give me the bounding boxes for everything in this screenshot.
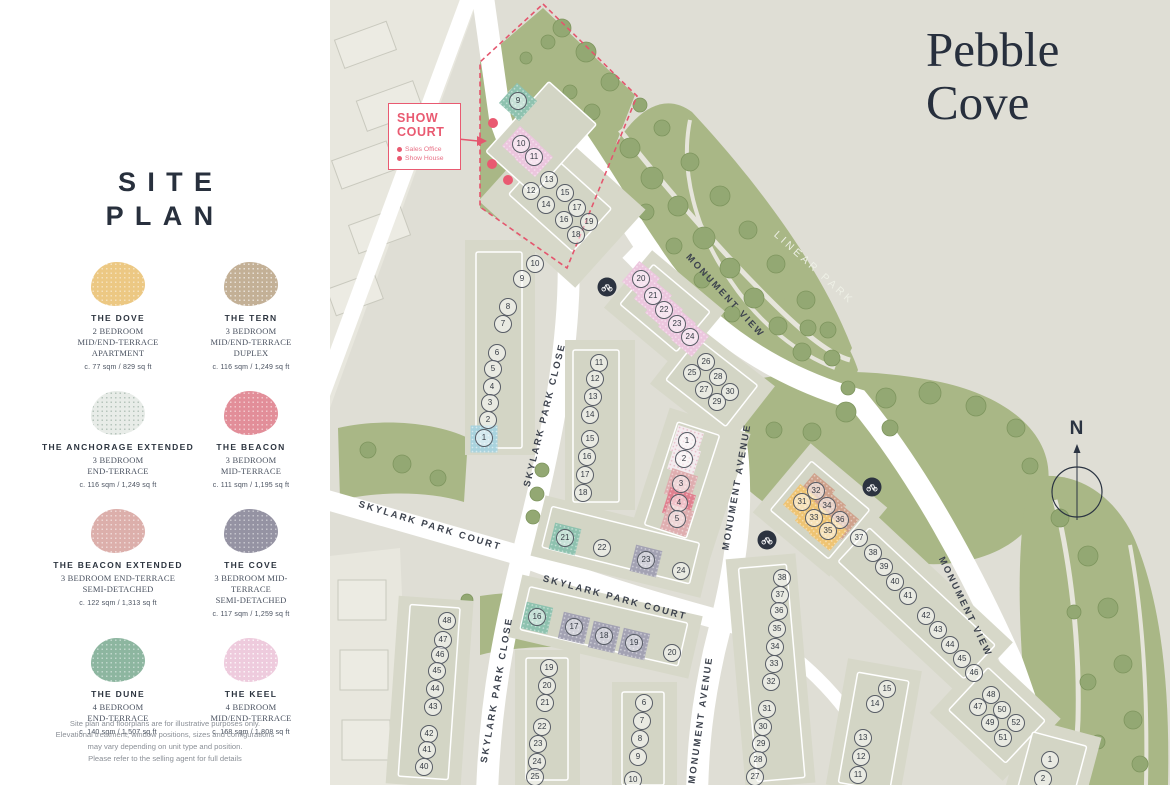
plot-marker[interactable]: 43 <box>424 698 442 716</box>
legend: THE DOVE2 BEDROOMMID/END-TERRACEAPARTMEN… <box>42 262 294 736</box>
plot-marker[interactable]: 43 <box>929 621 947 639</box>
plot-marker[interactable]: 5 <box>668 510 686 528</box>
plot-marker[interactable]: 2 <box>1034 770 1052 785</box>
plot-marker[interactable]: 48 <box>438 612 456 630</box>
legend-name: THE DUNE <box>42 689 194 699</box>
legend-swatch <box>224 262 278 306</box>
legend-name: THE BEACON EXTENDED <box>42 560 194 570</box>
plot-marker[interactable]: 35 <box>819 522 837 540</box>
plot-marker[interactable]: 17 <box>565 618 583 636</box>
plot-marker[interactable]: 10 <box>624 771 642 785</box>
plot-marker[interactable]: 29 <box>752 735 770 753</box>
legend-desc: 3 BEDROOMMID-TERRACE <box>208 455 294 477</box>
plot-marker[interactable]: 8 <box>631 730 649 748</box>
legend-item: THE TERN3 BEDROOMMID/END-TERRACEDUPLEXc.… <box>208 262 294 371</box>
plot-marker[interactable]: 37 <box>850 529 868 547</box>
plot-marker[interactable]: 12 <box>522 182 540 200</box>
show-court-title-line2: COURT <box>397 125 444 139</box>
north-label: N <box>1042 418 1112 440</box>
legend-swatch <box>91 638 145 682</box>
plot-marker[interactable]: 24 <box>681 328 699 346</box>
legend-item: THE BEACON EXTENDED3 BEDROOM END-TERRACE… <box>42 509 194 618</box>
plot-marker[interactable]: 9 <box>629 748 647 766</box>
disclaimer-line: Please refer to the selling agent for fu… <box>88 754 242 763</box>
plot-marker[interactable]: 32 <box>762 673 780 691</box>
plot-marker[interactable]: 2 <box>479 411 497 429</box>
page-title-line2: PLAN <box>106 201 225 231</box>
plot-marker[interactable]: 25 <box>683 364 701 382</box>
legend-swatch <box>91 509 145 553</box>
plot-marker[interactable]: 9 <box>509 92 527 110</box>
plot-marker[interactable]: 22 <box>533 718 551 736</box>
legend-desc: 3 BEDROOM MID-TERRACESEMI-DETACHED <box>208 573 294 606</box>
plot-marker[interactable]: 3 <box>481 394 499 412</box>
plot-marker[interactable]: 13 <box>854 729 872 747</box>
site-plan-page: SITE PLAN THE DOVE2 BEDROOMMID/END-TERRA… <box>0 0 1170 785</box>
plot-marker[interactable]: 36 <box>770 602 788 620</box>
plot-marker[interactable]: 17 <box>576 466 594 484</box>
legend-item: THE DOVE2 BEDROOMMID/END-TERRACEAPARTMEN… <box>42 262 194 371</box>
site-map: 9101113121514171619181098765432111121314… <box>330 0 1170 785</box>
plot-marker[interactable]: 13 <box>540 171 558 189</box>
plot-marker[interactable]: 22 <box>593 539 611 557</box>
plot-marker[interactable]: 1 <box>1041 751 1059 769</box>
plot-marker[interactable]: 14 <box>866 695 884 713</box>
plot-marker[interactable]: 44 <box>426 680 444 698</box>
plot-marker[interactable]: 15 <box>581 430 599 448</box>
legend-name: THE TERN <box>208 313 294 323</box>
plot-marker[interactable]: 18 <box>595 627 613 645</box>
legend-size: c. 116 sqm / 1,249 sq ft <box>42 482 194 489</box>
legend-swatch <box>224 638 278 682</box>
page-title-line1: SITE <box>118 167 223 197</box>
plot-marker[interactable]: 18 <box>567 226 585 244</box>
plot-marker[interactable]: 2 <box>675 450 693 468</box>
plot-marker[interactable]: 11 <box>849 766 867 784</box>
plot-marker[interactable]: 41 <box>418 741 436 759</box>
legend-item: THE BEACON3 BEDROOMMID-TERRACEc. 111 sqm… <box>208 391 294 489</box>
plot-marker[interactable]: 12 <box>852 748 870 766</box>
plot-marker[interactable]: 21 <box>556 529 574 547</box>
plot-marker[interactable]: 46 <box>431 646 449 664</box>
legend-size: c. 116 sqm / 1,249 sq ft <box>208 364 294 371</box>
plot-marker[interactable]: 16 <box>555 211 573 229</box>
plot-marker[interactable]: 47 <box>969 698 987 716</box>
development-title-line1: Pebble <box>926 24 1059 77</box>
disclaimer-line: Elevational treatment, window positions,… <box>56 730 275 739</box>
plot-marker[interactable]: 27 <box>746 768 764 785</box>
plot-marker[interactable]: 38 <box>773 569 791 587</box>
legend-swatch <box>224 509 278 553</box>
plot-marker[interactable]: 35 <box>768 620 786 638</box>
street-label: SKYLARK PARK COURT <box>357 499 503 553</box>
bike-parking-icon <box>598 278 617 297</box>
legend-size: c. 122 sqm / 1,313 sq ft <box>42 600 194 607</box>
plot-marker[interactable]: 19 <box>625 634 643 652</box>
plot-marker[interactable]: 7 <box>494 315 512 333</box>
plot-marker[interactable]: 33 <box>765 655 783 673</box>
plot-marker[interactable]: 3 <box>672 475 690 493</box>
show-court-title: SHOW COURT <box>397 112 455 140</box>
plot-marker[interactable]: 13 <box>584 388 602 406</box>
legend-name: THE COVE <box>208 560 294 570</box>
development-title: Pebble Cove <box>926 24 1059 130</box>
plot-marker[interactable]: 25 <box>526 768 544 785</box>
legend-swatch <box>224 391 278 435</box>
legend-name: THE BEACON <box>208 442 294 452</box>
show-house-label: Show House <box>405 155 444 162</box>
plot-marker[interactable]: 23 <box>529 735 547 753</box>
plot-marker[interactable]: 28 <box>709 368 727 386</box>
plot-marker[interactable]: 23 <box>637 551 655 569</box>
legend-name: THE ANCHORAGE EXTENDED <box>42 442 194 452</box>
plot-marker[interactable]: 29 <box>708 393 726 411</box>
plot-marker[interactable]: 1 <box>678 432 696 450</box>
legend-swatch <box>91 262 145 306</box>
plot-marker[interactable]: 41 <box>899 587 917 605</box>
plot-marker[interactable]: 31 <box>793 493 811 511</box>
legend-desc: 3 BEDROOMEND-TERRACE <box>42 455 194 477</box>
plot-marker[interactable]: 20 <box>538 677 556 695</box>
plot-marker[interactable]: 16 <box>578 448 596 466</box>
legend-item: THE COVE3 BEDROOM MID-TERRACESEMI-DETACH… <box>208 509 294 618</box>
plot-marker[interactable]: 6 <box>635 694 653 712</box>
plot-marker[interactable]: 14 <box>537 196 555 214</box>
show-court-item-show-house: Show House <box>397 155 455 162</box>
plot-marker[interactable]: 9 <box>513 270 531 288</box>
street-label: SKYLARK PARK CLOSE <box>479 616 516 764</box>
plot-marker[interactable]: 46 <box>965 664 983 682</box>
plot-marker[interactable]: 49 <box>981 714 999 732</box>
legend-desc: 2 BEDROOMMID/END-TERRACEAPARTMENT <box>42 326 194 359</box>
bike-parking-icon <box>863 478 882 497</box>
disclaimer-line: may vary depending on unit type and posi… <box>88 742 243 751</box>
plot-marker[interactable]: 21 <box>536 694 554 712</box>
show-court-poi-dot-icon <box>487 159 497 169</box>
disclaimer-line: Site plan and floorplans are for illustr… <box>70 719 260 728</box>
plot-marker[interactable]: 8 <box>499 298 517 316</box>
legend-desc: 3 BEDROOM END-TERRACESEMI-DETACHED <box>42 573 194 595</box>
plot-marker[interactable]: 51 <box>994 729 1012 747</box>
plot-marker[interactable]: 12 <box>586 370 604 388</box>
street-label: MONUMENT AVENUE <box>720 423 753 552</box>
plot-marker[interactable]: 5 <box>484 360 502 378</box>
plot-marker[interactable]: 15 <box>878 680 896 698</box>
plot-marker[interactable]: 20 <box>663 644 681 662</box>
disclaimer: Site plan and floorplans are for illustr… <box>35 718 295 765</box>
legend-desc: 3 BEDROOMMID/END-TERRACEDUPLEX <box>208 326 294 359</box>
plot-marker[interactable]: 45 <box>428 662 446 680</box>
plot-marker[interactable]: 19 <box>540 659 558 677</box>
sales-office-dot-icon <box>397 147 402 152</box>
legend-item: THE ANCHORAGE EXTENDED3 BEDROOMEND-TERRA… <box>42 391 194 489</box>
plot-marker[interactable]: 14 <box>581 406 599 424</box>
legend-size: c. 117 sqm / 1,259 sq ft <box>208 611 294 618</box>
legend-name: THE KEEL <box>208 689 294 699</box>
plot-marker[interactable]: 7 <box>633 712 651 730</box>
show-court-title-line1: SHOW <box>397 111 438 125</box>
show-court-poi-dot-icon <box>503 175 513 185</box>
sales-office-label: Sales Office <box>405 146 442 153</box>
street-label: LINEAR PARK <box>771 229 856 307</box>
legend-panel: SITE PLAN THE DOVE2 BEDROOMMID/END-TERRA… <box>0 0 330 785</box>
page-title: SITE PLAN <box>0 166 330 234</box>
street-label: SKYLARK PARK CLOSE <box>522 342 568 488</box>
street-label: MONUMENT AVENUE <box>687 656 716 785</box>
compass-icon <box>1042 440 1112 522</box>
plot-marker[interactable]: 15 <box>556 184 574 202</box>
show-court-callout: SHOW COURT Sales Office Show House <box>388 103 461 170</box>
show-court-item-sales-office: Sales Office <box>397 146 455 153</box>
show-court-poi-dot-icon <box>488 118 498 128</box>
plot-marker[interactable]: 40 <box>415 758 433 776</box>
north-arrow: N <box>1042 418 1112 527</box>
plot-marker[interactable]: 16 <box>528 608 546 626</box>
plot-marker[interactable]: 34 <box>766 638 784 656</box>
plot-marker[interactable]: 10 <box>526 255 544 273</box>
legend-size: c. 111 sqm / 1,195 sq ft <box>208 482 294 489</box>
legend-name: THE DOVE <box>42 313 194 323</box>
legend-swatch <box>91 391 145 435</box>
plot-marker[interactable]: 30 <box>754 718 772 736</box>
plot-marker[interactable]: 20 <box>632 270 650 288</box>
plot-marker[interactable]: 28 <box>749 751 767 769</box>
plot-marker[interactable]: 18 <box>574 484 592 502</box>
bike-parking-icon <box>758 531 777 550</box>
show-house-dot-icon <box>397 156 402 161</box>
plot-marker[interactable]: 11 <box>525 148 543 166</box>
development-title-line2: Cove <box>926 77 1059 130</box>
plot-marker[interactable]: 24 <box>672 562 690 580</box>
plot-marker[interactable]: 1 <box>475 429 493 447</box>
plot-marker[interactable]: 52 <box>1007 714 1025 732</box>
legend-size: c. 77 sqm / 829 sq ft <box>42 364 194 371</box>
plot-marker[interactable]: 31 <box>758 700 776 718</box>
